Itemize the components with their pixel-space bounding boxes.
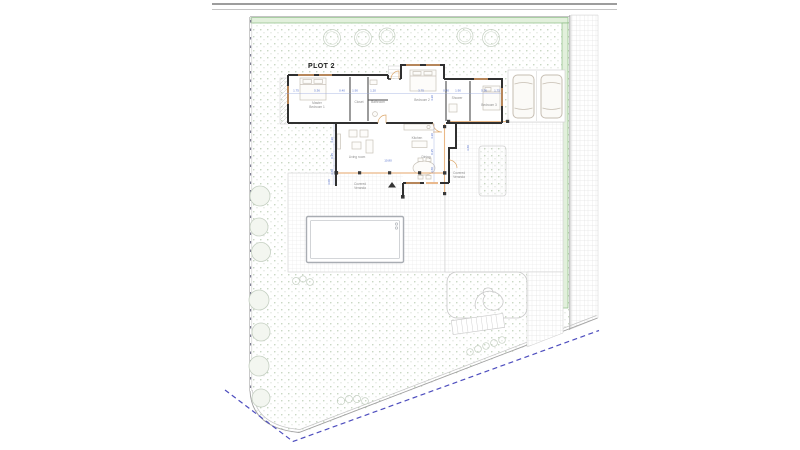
bush-icon xyxy=(249,356,269,376)
sidewalk-paving xyxy=(571,15,598,329)
dim-text: 0.25 xyxy=(430,149,434,155)
room-label-shower: Shower xyxy=(452,96,464,100)
car-icon xyxy=(541,75,562,118)
planter-hatched xyxy=(280,78,288,124)
room-label-kitchen: Kitchen xyxy=(412,136,423,140)
dim-text: 4.20 xyxy=(430,133,434,139)
room-label-veranda-east-2: Veranda xyxy=(453,175,465,179)
dim-text: 1.75 xyxy=(293,89,299,93)
dim-text: 0.40 xyxy=(443,89,449,93)
dim-text: 3.00 xyxy=(327,179,331,185)
dim-text: 5.36 xyxy=(481,89,487,93)
car-icon xyxy=(513,75,534,118)
bush-icon xyxy=(252,323,270,341)
dim-text: 3.60 xyxy=(330,169,334,175)
hedge-top xyxy=(251,18,568,24)
bush-icon xyxy=(250,186,270,206)
dim-text: 1.75 xyxy=(494,89,500,93)
room-label-closet: Closet xyxy=(354,100,363,104)
room-label-dining: Dining xyxy=(421,155,430,159)
bush-icon xyxy=(252,389,270,407)
room-label-living: Living room xyxy=(349,155,366,159)
dim-text: 4.20 xyxy=(330,137,334,143)
dim-text-living-width: 10.80 xyxy=(384,159,392,163)
bush-icon xyxy=(252,243,271,262)
room-label-bedroom3: Bedroom 3 xyxy=(481,103,497,107)
dim-text: 1.90 xyxy=(455,89,461,93)
room-label-veranda-south-2: Veranda xyxy=(354,186,366,190)
plot-title: PLOT 2 xyxy=(308,63,335,70)
room-label-bedroom2: Bedroom 2 xyxy=(414,98,430,102)
dim-text: 3.60 xyxy=(466,145,470,151)
dim-text: 4.20 xyxy=(430,95,434,101)
parking-area xyxy=(508,70,565,122)
dim-text: 3.75 xyxy=(418,89,424,93)
dim-text: 1.20 xyxy=(370,89,376,93)
dim-text: 1.90 xyxy=(352,89,358,93)
dim-text: 0.40 xyxy=(339,89,345,93)
bed-master xyxy=(300,78,326,100)
road-edge-lines xyxy=(212,4,617,10)
site-plan-canvas: 1.75 5.36 0.40 1.90 1.20 3.75 0.40 1.90 … xyxy=(0,0,800,450)
pool xyxy=(307,217,404,263)
bush-icon xyxy=(250,218,268,236)
bush-icon xyxy=(249,290,269,310)
dim-text: 3.60 xyxy=(430,167,434,173)
room-label-master-2: Bedroom 1 xyxy=(309,105,325,109)
site-plan-drawing: 1.75 5.36 0.40 1.90 1.20 3.75 0.40 1.90 … xyxy=(0,0,800,450)
dim-text: 0.25 xyxy=(330,153,334,159)
room-label-bathroom: Bathroom xyxy=(371,100,385,104)
dim-text: 5.36 xyxy=(314,89,320,93)
planting-bed xyxy=(479,146,506,196)
